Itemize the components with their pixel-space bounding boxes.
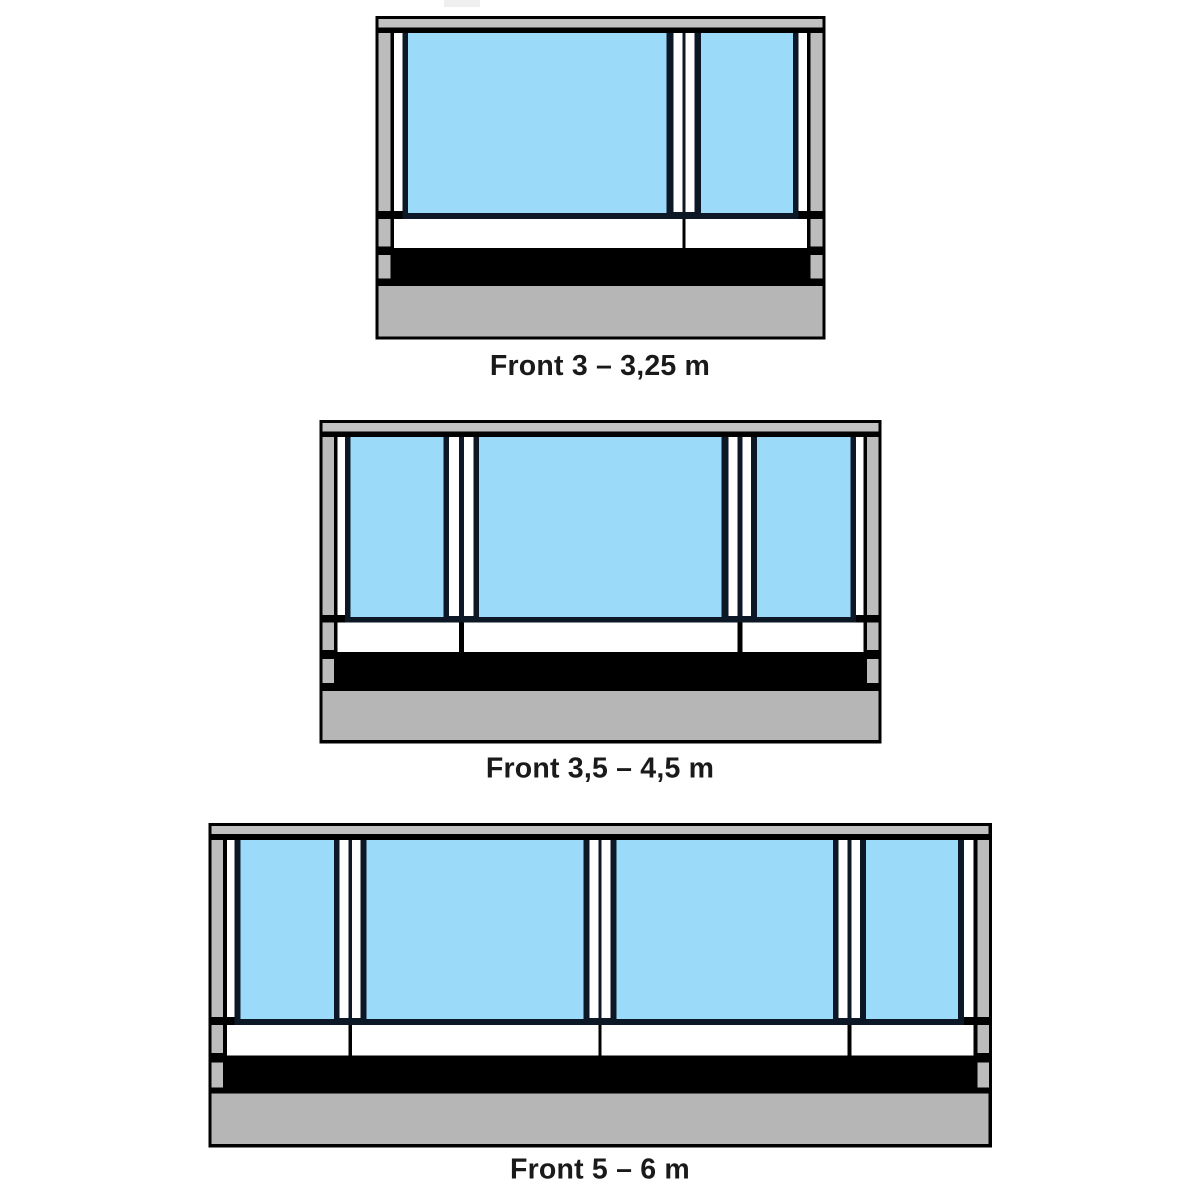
- svg-text:Front 3 – 3,25 m: Front 3 – 3,25 m: [490, 350, 710, 382]
- svg-text:Front 5 – 6 m: Front 5 – 6 m: [510, 1154, 690, 1186]
- svg-text:Front 3,5 – 4,5 m: Front 3,5 – 4,5 m: [486, 753, 714, 785]
